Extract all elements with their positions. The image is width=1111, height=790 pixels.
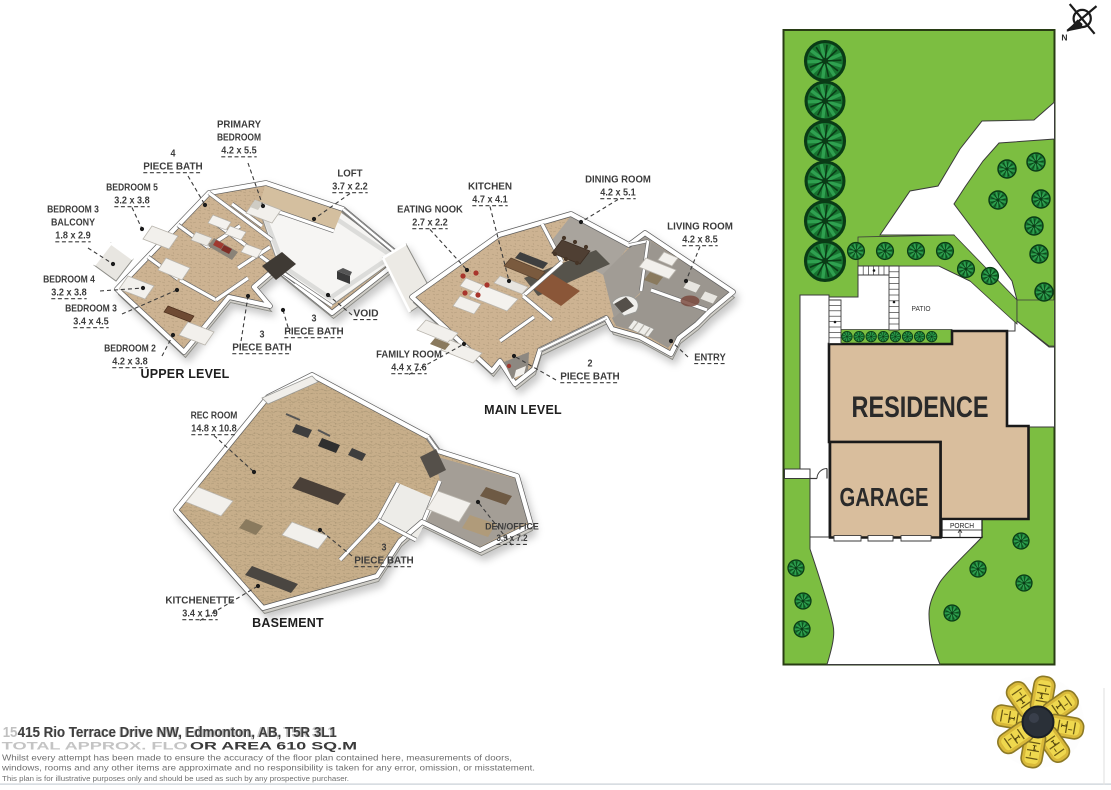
svg-text:GARAGE: GARAGE <box>840 482 929 512</box>
svg-text:3: 3 <box>260 328 265 340</box>
svg-text:4.2 x 5.5: 4.2 x 5.5 <box>221 145 257 157</box>
svg-text:3: 3 <box>382 541 387 553</box>
svg-text:BEDROOM 4: BEDROOM 4 <box>43 273 95 285</box>
svg-text:PORCH: PORCH <box>950 523 974 530</box>
svg-text:PATIO: PATIO <box>912 306 932 313</box>
svg-text:PIECE BATH: PIECE BATH <box>284 326 343 338</box>
svg-text:BEDROOM: BEDROOM <box>217 132 261 144</box>
svg-text:415 Rio Terrace Drive NW, Edmo: 415 Rio Terrace Drive NW, Edmonton, AB, … <box>18 725 337 741</box>
svg-text:3.9 x 7.2: 3.9 x 7.2 <box>497 533 528 543</box>
svg-text:MAIN LEVEL: MAIN LEVEL <box>484 403 562 417</box>
svg-text:4.2 x 3.8: 4.2 x 3.8 <box>112 356 148 368</box>
svg-text:N: N <box>1061 33 1067 43</box>
svg-text:LIVING ROOM: LIVING ROOM <box>667 220 733 232</box>
svg-text:PRIMARY: PRIMARY <box>217 118 261 130</box>
svg-text:4.7 x 4.1: 4.7 x 4.1 <box>472 194 508 206</box>
svg-text:KITCHENETTE: KITCHENETTE <box>165 594 234 606</box>
svg-text:2.7 x 2.2: 2.7 x 2.2 <box>412 217 448 229</box>
svg-text:PIECE BATH: PIECE BATH <box>232 342 291 354</box>
svg-text:4.2 x 5.1: 4.2 x 5.1 <box>600 187 636 199</box>
svg-text:REC ROOM: REC ROOM <box>191 409 238 421</box>
svg-text:KITCHEN: KITCHEN <box>468 180 512 192</box>
svg-text:TOTAL APPROX. FLO: TOTAL APPROX. FLO <box>2 741 188 753</box>
svg-text:This plan is for illustrative: This plan is for illustrative purposes o… <box>2 774 349 783</box>
svg-text:UPPER LEVEL: UPPER LEVEL <box>140 367 229 381</box>
svg-text:PIECE BATH: PIECE BATH <box>143 161 202 173</box>
svg-text:3.2 x 3.8: 3.2 x 3.8 <box>51 287 87 299</box>
svg-text:1.8 x 2.9: 1.8 x 2.9 <box>55 230 91 242</box>
svg-text:BASEMENT: BASEMENT <box>252 616 324 630</box>
svg-text:PIECE BATH: PIECE BATH <box>560 371 619 383</box>
svg-text:3.4 x 4.5: 3.4 x 4.5 <box>73 316 109 328</box>
svg-text:BEDROOM 3: BEDROOM 3 <box>47 203 99 215</box>
svg-text:2: 2 <box>588 357 593 369</box>
svg-text:LOFT: LOFT <box>337 167 363 179</box>
svg-text:DEN/OFFICE: DEN/OFFICE <box>485 521 539 531</box>
svg-text:OR AREA 610 SQ.M: OR AREA 610 SQ.M <box>190 741 357 753</box>
svg-text:BEDROOM 3: BEDROOM 3 <box>65 302 117 314</box>
svg-text:4: 4 <box>171 147 176 159</box>
svg-text:RESIDENCE: RESIDENCE <box>852 391 989 424</box>
svg-text:VOID: VOID <box>353 307 379 319</box>
svg-text:windows, rooms and any other i: windows, rooms and any other items are a… <box>1 763 535 773</box>
svg-text:BEDROOM 5: BEDROOM 5 <box>106 181 158 193</box>
svg-text:ENTRY: ENTRY <box>694 351 726 363</box>
svg-text:BEDROOM 2: BEDROOM 2 <box>104 342 156 354</box>
svg-text:3.7 x 2.2: 3.7 x 2.2 <box>332 181 368 193</box>
svg-text:PIECE BATH: PIECE BATH <box>354 555 413 567</box>
svg-text:Whilst every attempt has been: Whilst every attempt has been made to en… <box>2 753 512 763</box>
svg-text:DINING ROOM: DINING ROOM <box>585 173 651 185</box>
svg-text:BALCONY: BALCONY <box>51 217 95 229</box>
svg-text:4.2 x 8.5: 4.2 x 8.5 <box>682 234 718 246</box>
svg-text:FAMILY ROOM: FAMILY ROOM <box>376 348 442 360</box>
svg-text:3.2 x 3.8: 3.2 x 3.8 <box>114 195 150 207</box>
svg-text:EATING NOOK: EATING NOOK <box>397 203 463 215</box>
svg-text:14.8 x 10.8: 14.8 x 10.8 <box>191 423 237 435</box>
svg-text:3: 3 <box>312 312 317 324</box>
